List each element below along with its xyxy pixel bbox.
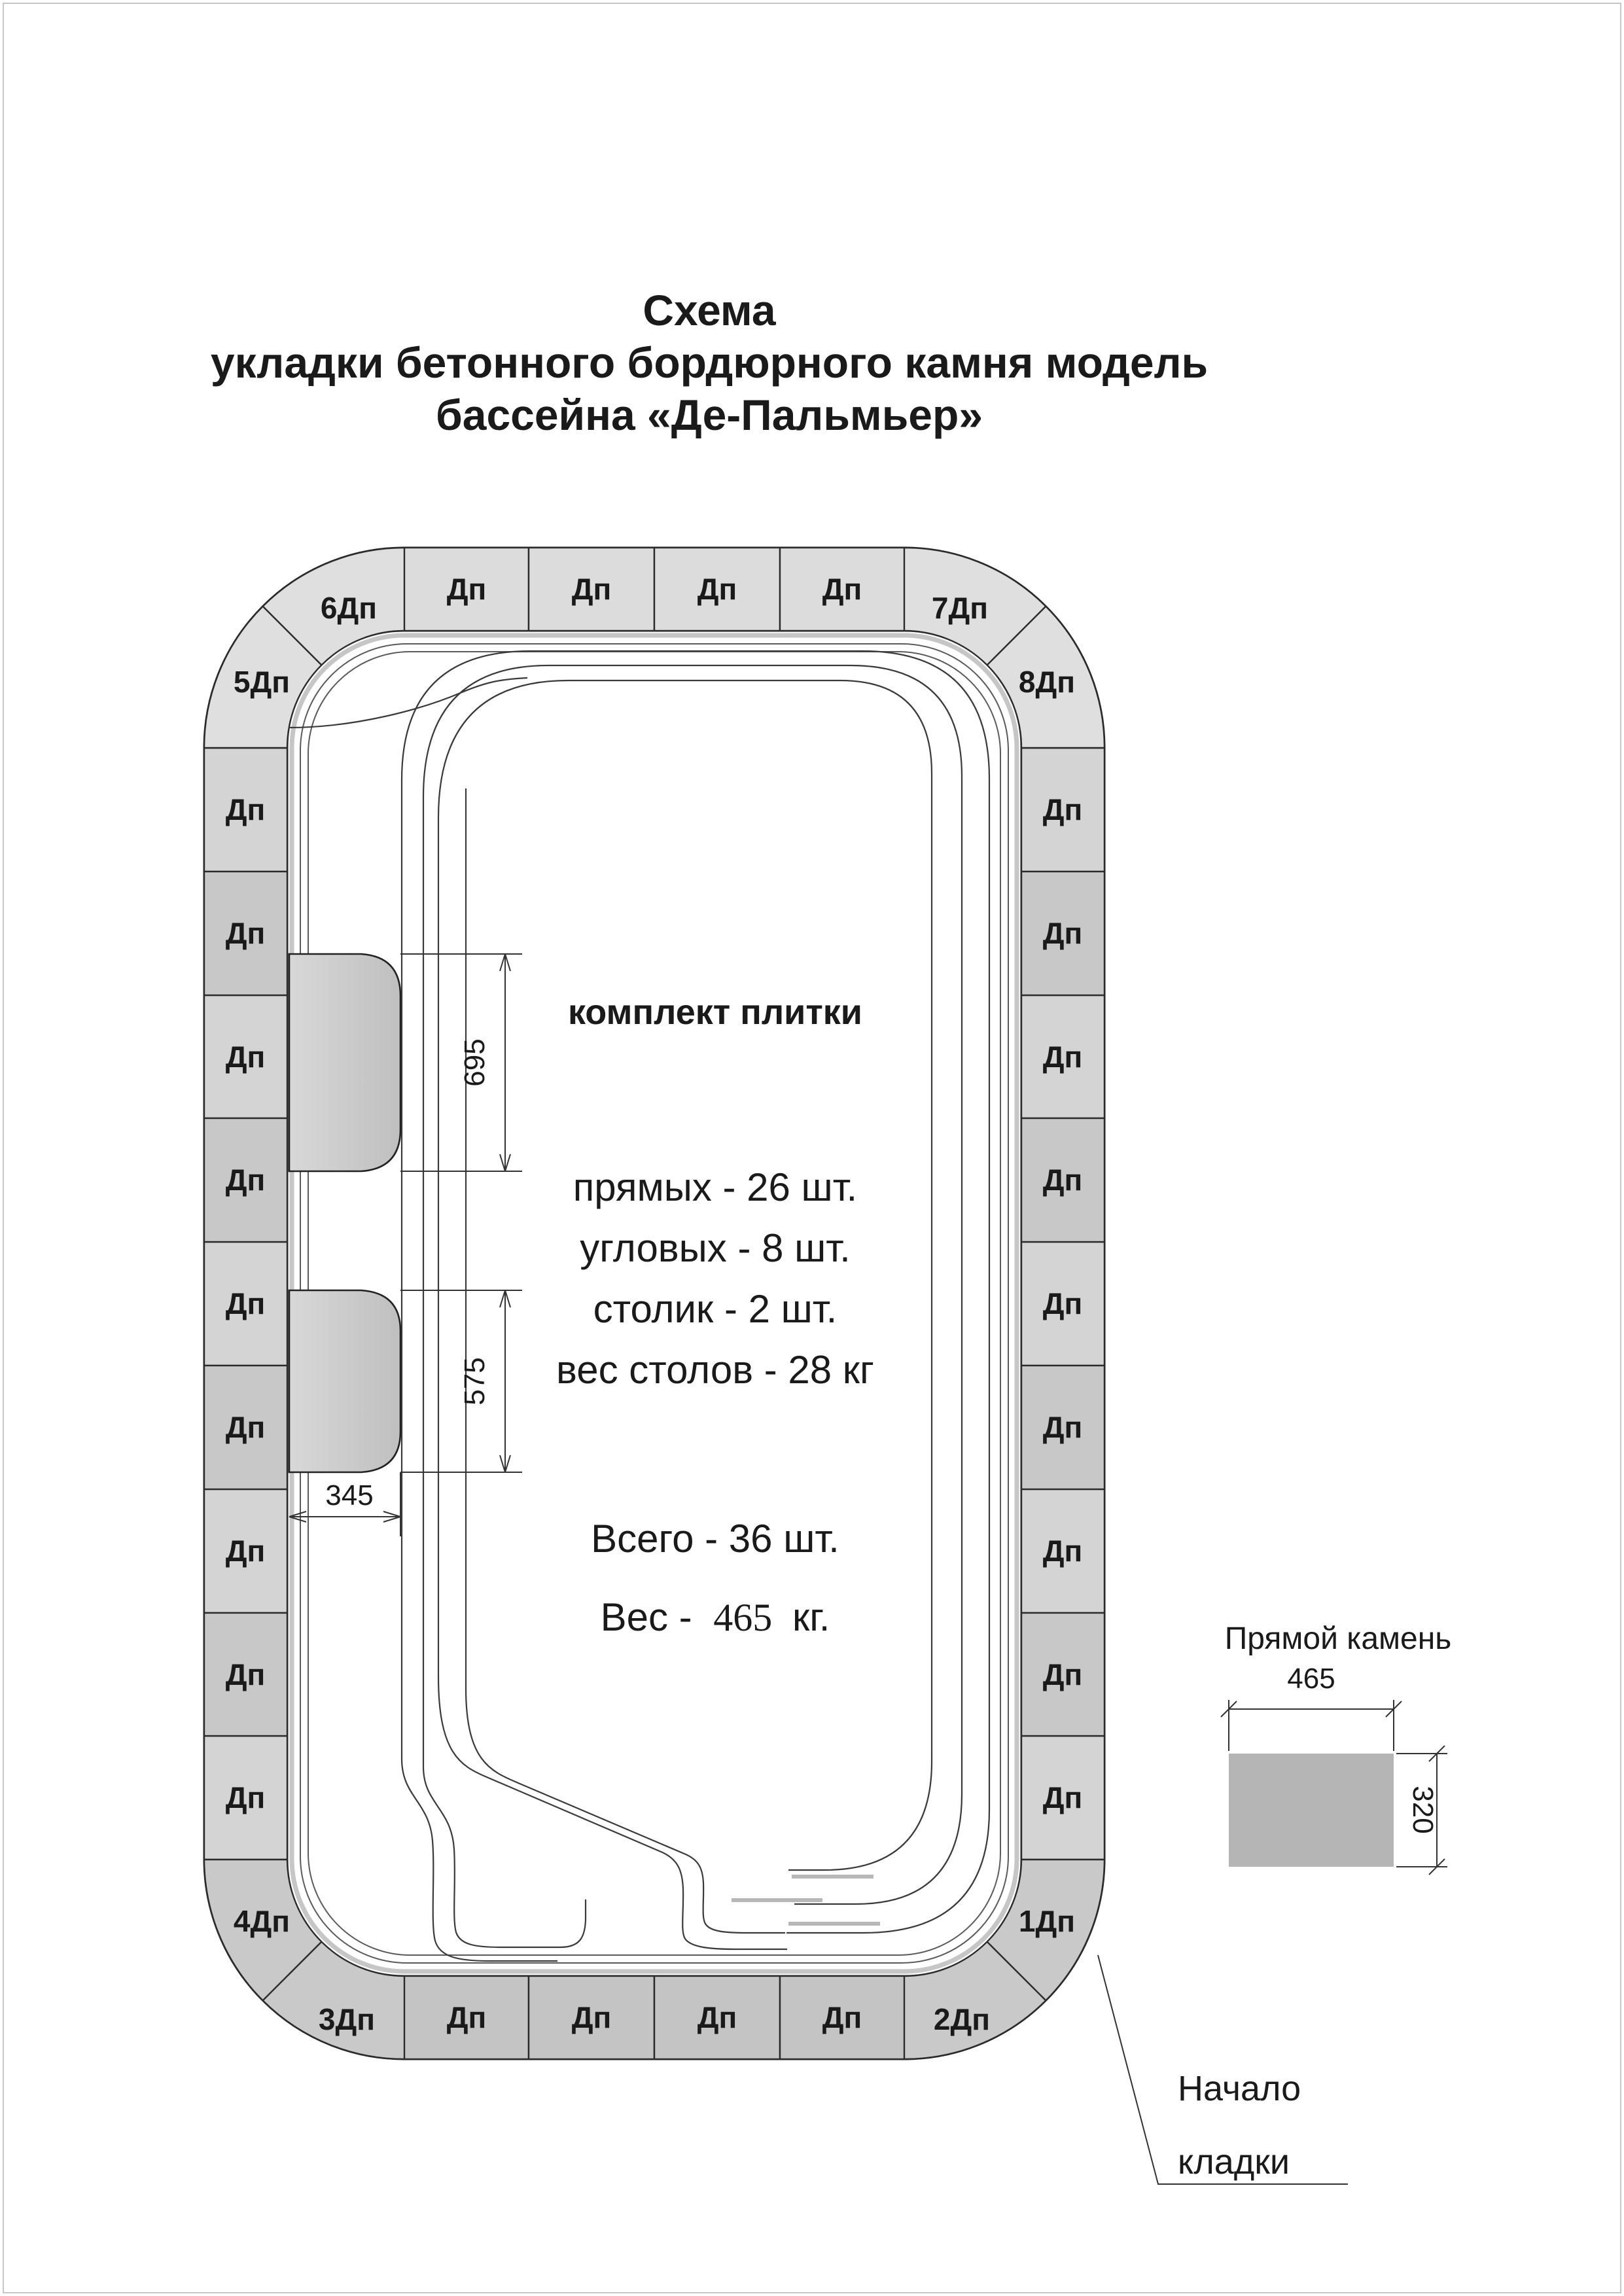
info-weight: Вес - 465 кг.: [601, 1595, 830, 1639]
tile-label: Дп: [697, 572, 737, 606]
tile-label: Дп: [226, 1780, 266, 1814]
tile-label: Дп: [822, 572, 862, 606]
tile-label: Дп: [572, 572, 612, 606]
tile-label: Дп: [226, 1410, 266, 1444]
info-weight-suffix: кг.: [792, 1595, 830, 1639]
title-line-3: бассейна «Де-Пальмьер»: [436, 391, 983, 439]
detail-title: Прямой камень: [1225, 1621, 1451, 1656]
info-line-straight: прямых - 26 шт.: [573, 1165, 857, 1209]
diagram-title: Схема укладки бетонного бордюрного камня…: [211, 286, 1208, 439]
tile-label: Дп: [572, 2000, 612, 2034]
table-tab-2: [289, 1290, 400, 1472]
stone-rect: [1229, 1754, 1394, 1867]
table-tab-1: [289, 954, 400, 1171]
tile-label: Дп: [226, 1286, 266, 1320]
corner-label-5: 5Дп: [234, 665, 290, 699]
tile-label: Дп: [226, 1040, 266, 1074]
title-line-2: укладки бетонного бордюрного камня модел…: [211, 338, 1208, 387]
corner-label-6: 6Дп: [321, 591, 377, 625]
info-heading: комплект плитки: [568, 993, 862, 1032]
tile-label: Дп: [1043, 1534, 1083, 1568]
tile-label: Дп: [1043, 1780, 1083, 1814]
info-line-table: столик - 2 шт.: [593, 1287, 838, 1331]
tile-label: Дп: [1043, 1163, 1083, 1197]
info-weight-prefix: Вес -: [601, 1595, 692, 1639]
corner-label-1: 1Дп: [1019, 1904, 1075, 1938]
tile-label: Дп: [822, 2000, 862, 2034]
tile-label: Дп: [1043, 792, 1083, 826]
tile-label: Дп: [697, 2000, 737, 2034]
tile-label: Дп: [1043, 1410, 1083, 1444]
info-line-table-weight: вес столов - 28 кг: [556, 1348, 874, 1392]
tile-label: Дп: [226, 792, 266, 826]
tile-label: Дп: [226, 1657, 266, 1691]
corner-label-4: 4Дп: [234, 1904, 290, 1938]
annotation-line-2: кладки: [1178, 2142, 1290, 2181]
info-weight-value: 465: [713, 1596, 772, 1639]
tile-label: Дп: [226, 916, 266, 950]
stone-height-value: 320: [1407, 1786, 1439, 1833]
dim-345-value: 345: [325, 1479, 373, 1511]
stone-width-value: 465: [1287, 1663, 1335, 1695]
tile-label: Дп: [447, 2000, 487, 2034]
corner-label-3: 3Дп: [319, 2002, 375, 2036]
corner-label-8: 8Дп: [1019, 665, 1075, 699]
corner-label-7: 7Дп: [932, 591, 988, 625]
dim-695-value: 695: [459, 1038, 491, 1086]
corner-label-2: 2Дп: [934, 2002, 990, 2036]
info-line-corner: угловых - 8 шт.: [580, 1226, 851, 1270]
info-total: Всего - 36 шт.: [591, 1517, 839, 1561]
start-annotation: Начало кладки: [1098, 1955, 1348, 2184]
annotation-line-1: Начало: [1178, 2069, 1301, 2108]
tile-label: Дп: [1043, 1040, 1083, 1074]
pool-tiling-diagram: Схема укладки бетонного бордюрного камня…: [0, 0, 1624, 2296]
document-page: Схема укладки бетонного бордюрного камня…: [0, 0, 1624, 2296]
tile-label: Дп: [1043, 916, 1083, 950]
straight-stone-detail: Прямой камень 465 320: [1221, 1621, 1451, 1875]
tile-label: Дп: [1043, 1286, 1083, 1320]
dim-575-value: 575: [459, 1357, 491, 1405]
tile-label: Дп: [226, 1163, 266, 1197]
title-line-1: Схема: [643, 286, 777, 334]
tile-label: Дп: [226, 1534, 266, 1568]
tile-label: Дп: [1043, 1657, 1083, 1691]
tile-label: Дп: [447, 572, 487, 606]
